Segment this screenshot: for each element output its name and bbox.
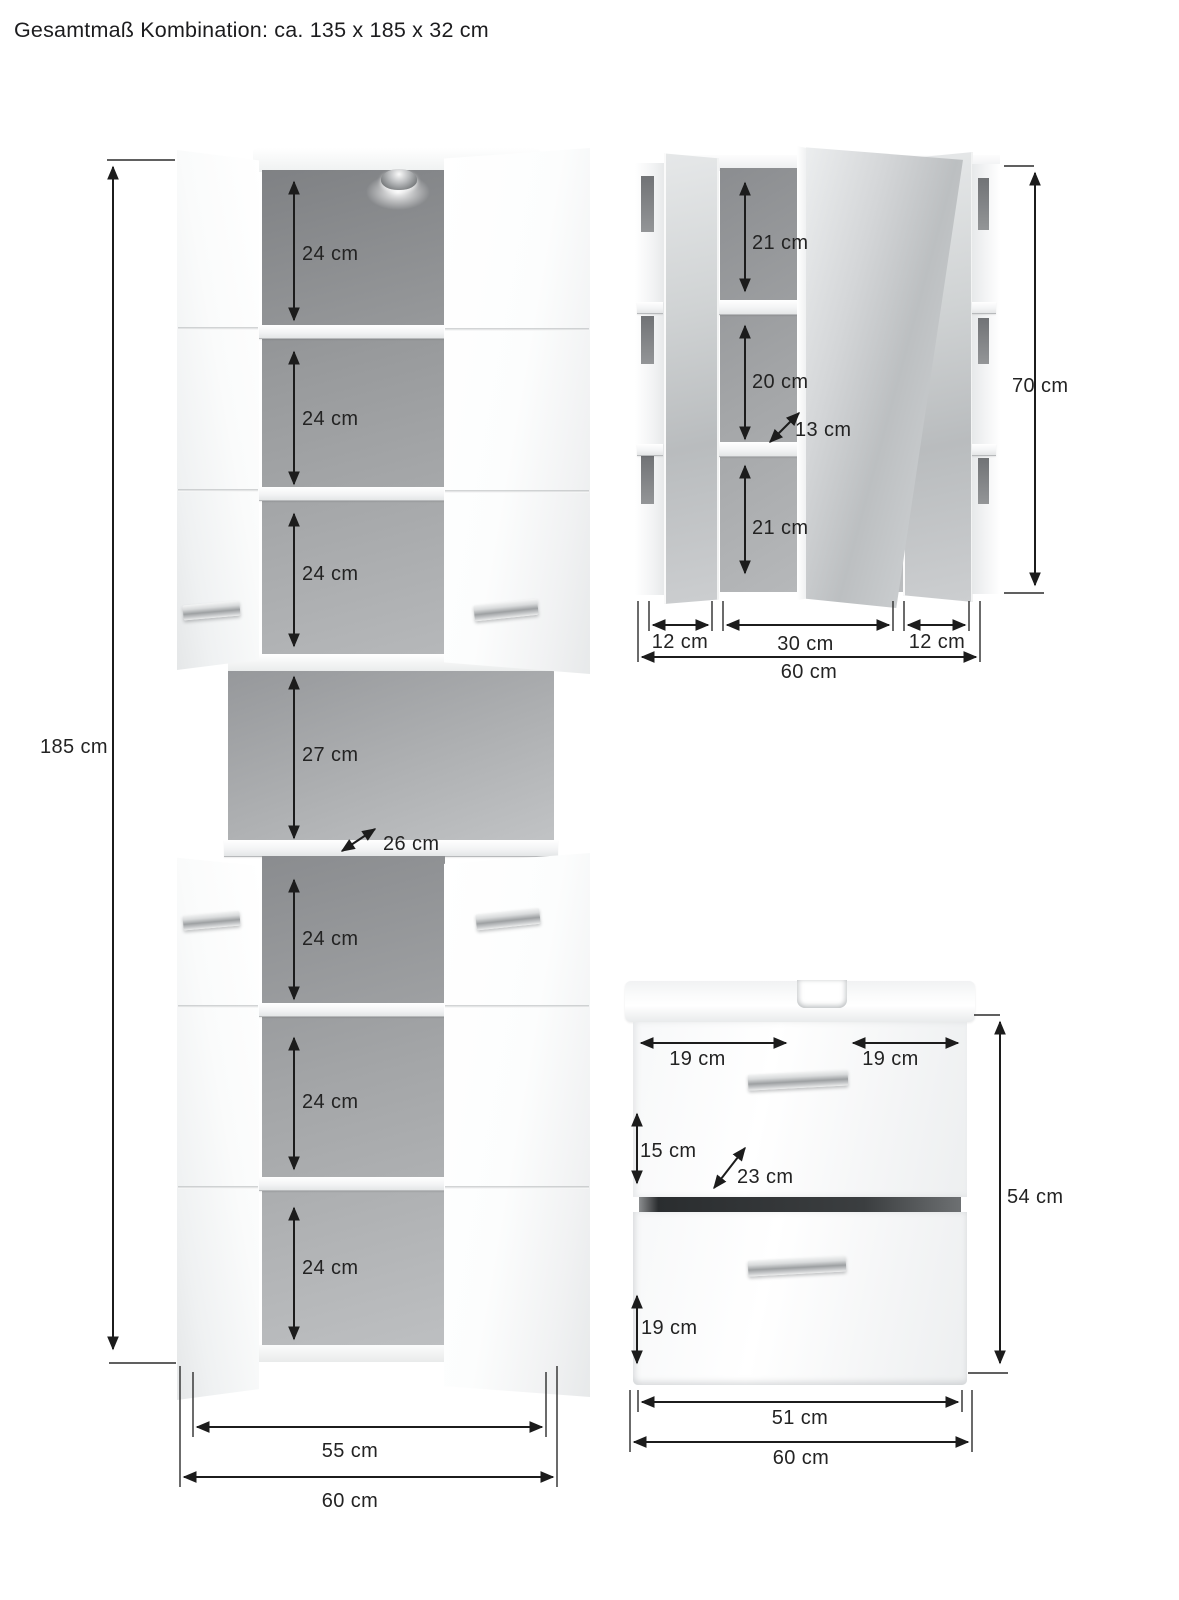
basin-depth-label: 23 cm (737, 1166, 793, 1189)
basin-height-label: 54 cm (1007, 1186, 1063, 1209)
tall-compartment-label: 24 cm (302, 1257, 358, 1280)
tall-compartment-label: 24 cm (302, 1091, 358, 1114)
mirror-outer-width-label: 60 cm (744, 661, 874, 684)
tall-outer-width-label: 60 cm (290, 1490, 410, 1513)
tall-inner-width-label: 55 cm (290, 1440, 410, 1463)
mirror-compartment-label: 21 cm (752, 232, 808, 255)
basin-drawer-height-label: 15 cm (640, 1140, 696, 1163)
basin-drawer-height-label: 19 cm (641, 1317, 697, 1340)
mirror-compartment-label: 21 cm (752, 517, 808, 540)
mirror-door-width-label: 12 cm (906, 631, 968, 654)
tall-height-label: 185 cm (40, 736, 106, 759)
tall-compartment-label: 24 cm (302, 408, 358, 431)
mirror-compartment-label: 20 cm (752, 371, 808, 394)
basin-top-width-label: 19 cm (640, 1048, 755, 1071)
tall-compartment-label: 24 cm (302, 928, 358, 951)
dimension-diagram: Gesamtmaß Kombination: ca. 135 x 185 x 3… (0, 0, 1179, 1600)
tall-compartment-label: 24 cm (302, 563, 358, 586)
mirror-height-label: 70 cm (1012, 375, 1068, 398)
dimension-lines (0, 0, 1179, 1600)
basin-top-width-label: 19 cm (833, 1048, 948, 1071)
tall-open-compartment-label: 27 cm (302, 744, 358, 767)
mirror-door-width-label: 30 cm (748, 633, 863, 656)
basin-inner-width-label: 51 cm (740, 1407, 860, 1430)
basin-outer-width-label: 60 cm (741, 1447, 861, 1470)
tall-depth-label: 26 cm (383, 833, 439, 856)
dim-line-26-depth (342, 829, 375, 851)
mirror-door-width-label: 12 cm (650, 631, 710, 654)
tall-compartment-label: 24 cm (302, 243, 358, 266)
mirror-depth-label: 13 cm (795, 419, 851, 442)
